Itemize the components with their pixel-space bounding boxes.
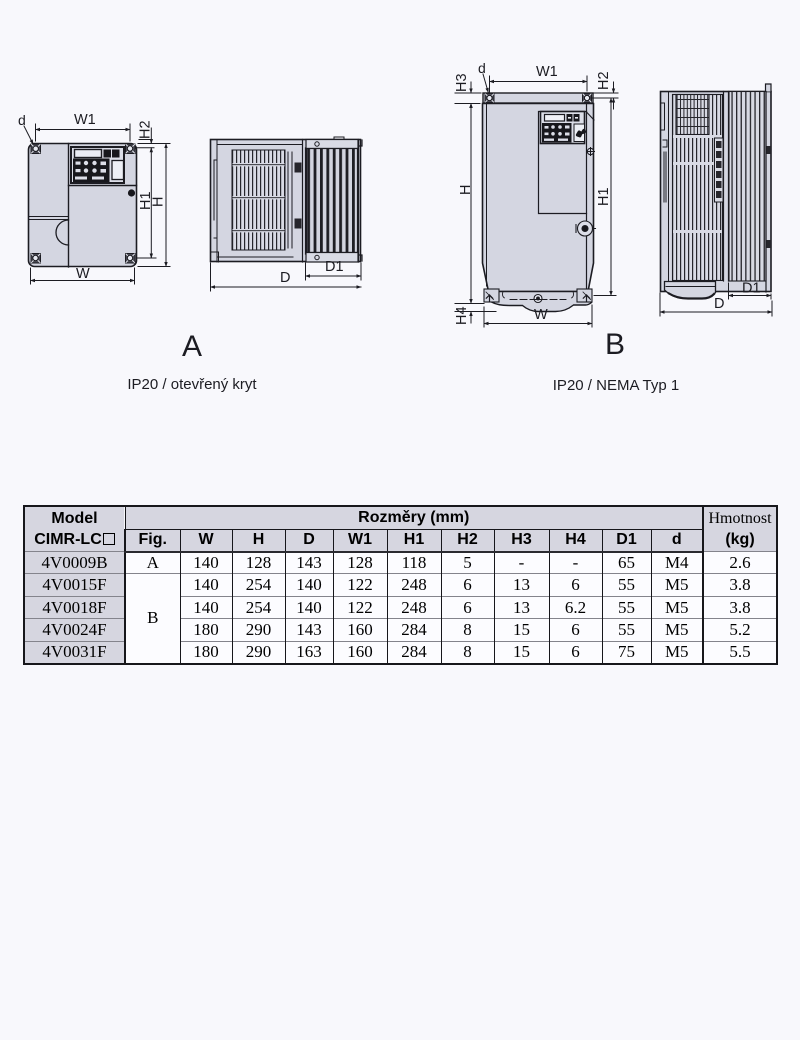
svg-text:D1: D1 bbox=[325, 259, 344, 275]
svg-text:D1: D1 bbox=[742, 281, 761, 297]
svg-text:W: W bbox=[534, 307, 548, 323]
svg-text:D: D bbox=[280, 270, 290, 286]
svg-text:H2: H2 bbox=[596, 71, 612, 90]
svg-text:H2: H2 bbox=[138, 120, 154, 139]
svg-text:H4: H4 bbox=[454, 306, 470, 325]
svg-text:d: d bbox=[18, 112, 26, 128]
svg-text:D: D bbox=[714, 296, 724, 312]
svg-text:H: H bbox=[151, 197, 167, 207]
svg-text:W1: W1 bbox=[536, 64, 558, 80]
svg-text:W1: W1 bbox=[74, 112, 96, 128]
svg-text:H3: H3 bbox=[454, 73, 470, 92]
svg-text:W: W bbox=[76, 266, 90, 282]
svg-text:H: H bbox=[458, 185, 474, 195]
svg-text:d: d bbox=[478, 60, 486, 76]
svg-text:H1: H1 bbox=[596, 187, 612, 206]
